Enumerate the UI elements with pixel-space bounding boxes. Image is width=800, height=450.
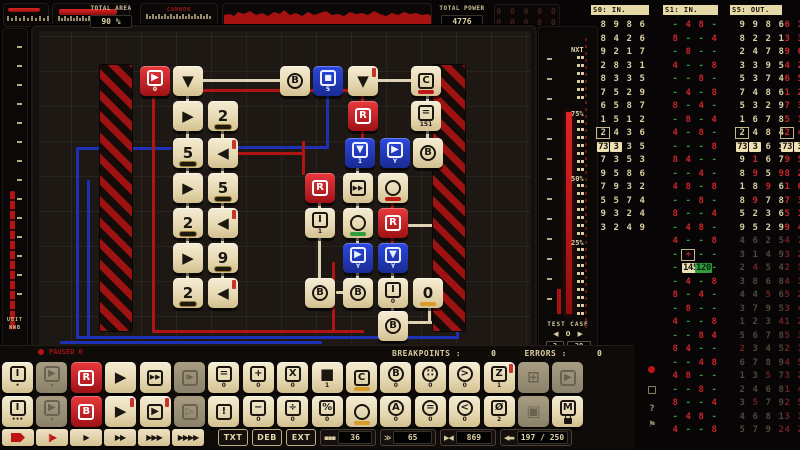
toolbar-tile-▶[interactable]: ▶: [105, 396, 136, 427]
stream-s5-cell: 2: [736, 344, 748, 354]
readout-value: 65: [393, 431, 432, 444]
wire-signal: [376, 79, 413, 82]
board-tile-◀[interactable]: ◀: [208, 208, 238, 238]
speed-button-4[interactable]: ▶▶▶▶: [172, 429, 204, 446]
dim-display-line: 0 0 0 0 0: [495, 6, 559, 17]
test-case-next-button[interactable]: ▶: [577, 330, 582, 338]
window-icon[interactable]: [648, 386, 656, 394]
toolbar-tile->[interactable]: >0: [449, 362, 480, 393]
toolbar-tile-▶▶[interactable]: ▶▶: [140, 362, 171, 393]
board-tile-◀[interactable]: ◀: [208, 138, 238, 168]
tile-glyph: ▼: [385, 247, 401, 263]
tile-glyph: ▶: [115, 404, 127, 419]
tile-glyph: >: [457, 366, 473, 382]
tile-glyph: 5: [218, 181, 228, 196]
tile-underbar: [180, 302, 196, 306]
stream-s1-cell: -: [708, 47, 720, 57]
stream-s1-cell: -: [695, 142, 707, 152]
stream-s5-cell: 2: [749, 317, 761, 327]
left-strip-tick: [17, 122, 22, 124]
stream-s5-cell: 6: [762, 142, 774, 152]
board-tile-▶[interactable]: ▶: [173, 173, 203, 203]
stream-s1-cell: 4: [669, 236, 681, 246]
tick-mark: [188, 14, 190, 19]
stream-s5-cell: 3: [736, 304, 748, 314]
speed-button-1[interactable]: ▶: [70, 429, 102, 446]
separator-dot: [585, 248, 587, 251]
toolbar-tile-R[interactable]: R: [71, 362, 102, 393]
toolbar-tile-▶[interactable]: ▶: [552, 362, 583, 393]
stream-s0-cell: 6: [636, 20, 648, 30]
stream-s1-cell: 8: [682, 304, 694, 314]
breakpoints-label: BREAKPOINTS :: [392, 349, 461, 358]
separator-dot: [585, 129, 587, 132]
meter-dot: [577, 72, 580, 75]
stream-s5-cell: 4: [749, 47, 761, 57]
toolbar-tile-▶[interactable]: ▶: [140, 396, 171, 427]
game-screen: TOTAL AREA 90 % CANNON TOTAL POWER 4776 …: [0, 0, 800, 450]
stream-edge-cell: 5: [794, 155, 800, 165]
stream-s1-cell: 4: [682, 412, 694, 422]
board-tile-node[interactable]: [378, 173, 408, 203]
stream-s0-cell: 9: [636, 88, 648, 98]
toolbar-tile-A[interactable]: A0: [380, 396, 411, 427]
stream-s1-cell: 8: [669, 398, 681, 408]
speed-button-3[interactable]: ▶▶▶: [138, 429, 170, 446]
tile-glyph: B: [312, 285, 328, 301]
tile-glyph: ◀: [217, 146, 229, 161]
stream-s1-cell: -: [708, 196, 720, 206]
stream-s0-cell: 2: [623, 34, 635, 44]
separator-dot: [585, 157, 587, 160]
stream-s0-cell: 9: [597, 169, 609, 179]
txt-button[interactable]: TXT: [218, 429, 248, 446]
meter-dot: [577, 184, 580, 187]
stream-s5-cell: 2: [749, 34, 761, 44]
stream-s0-cell: 6: [597, 101, 609, 111]
stream-s1-cell: 4: [695, 358, 707, 368]
stream-s1-cell: 4: [708, 34, 720, 44]
toolbar-tile-I[interactable]: I•••: [2, 396, 33, 427]
tile-sublabel: 0: [325, 417, 329, 423]
stream-s5-cell: 1: [749, 250, 761, 260]
tile-glyph: ∷: [422, 366, 438, 382]
tile-glyph: R: [312, 180, 328, 196]
board-tile-B[interactable]: B: [305, 278, 335, 308]
tick-mark: [203, 16, 205, 19]
stream-s5-cell: 2: [736, 47, 748, 57]
meter-dot: [577, 200, 580, 203]
stream-s1-cell: -: [695, 371, 707, 381]
meter-dot: [577, 64, 580, 67]
stream-s1-cell: -: [682, 101, 694, 111]
separator-dot: [585, 136, 587, 139]
stream-s1-cell: -: [669, 250, 681, 260]
stream-s5-cell: 9: [736, 155, 748, 165]
tile-glyph: ⊞: [527, 370, 540, 385]
stream-s0-cell: 8: [610, 61, 622, 71]
stream-edge-cell: 1: [781, 88, 793, 98]
stream-s5-cell: 3: [749, 101, 761, 111]
tile-glyph: ▶: [147, 404, 163, 420]
separator-dot: [585, 94, 587, 97]
toolbar-tile-B[interactable]: B: [71, 396, 102, 427]
board-tile-C[interactable]: C: [411, 66, 441, 96]
readout-1: ▪▪▪36: [320, 429, 376, 446]
ext-button[interactable]: EXT: [286, 429, 316, 446]
tile-glyph: ▶: [182, 181, 194, 196]
separator-dot: [585, 192, 587, 195]
meter-dot: [577, 248, 580, 251]
separator-dot: [585, 262, 587, 265]
meter-dot: [577, 160, 580, 163]
meter-dash: [547, 238, 552, 240]
errors-value: 0: [597, 349, 602, 358]
tick-mark: [39, 16, 41, 21]
stream-s1-cell: 8: [708, 358, 720, 368]
tile-underbar: [354, 387, 370, 391]
stream-s5-cell: 5: [762, 169, 774, 179]
meter-dash: [547, 298, 552, 300]
toolbar-tile-![interactable]: !: [208, 396, 239, 427]
stream-s0-cell: 7: [623, 196, 635, 206]
stream-s1-cell: 4: [695, 290, 707, 300]
toolbar-tile-▶[interactable]: ▶: [105, 362, 136, 393]
tile-sublabel: Y: [356, 264, 360, 270]
wire-red: [238, 152, 304, 155]
stream-s0-cell: 2: [623, 88, 635, 98]
toolbar-tile-=[interactable]: =0: [415, 396, 446, 427]
tile-sublabel: 0: [153, 87, 157, 93]
toolbar-tile-M[interactable]: M: [552, 396, 583, 427]
stream-s1-cell: 4: [695, 169, 707, 179]
board-tile-I[interactable]: I1: [305, 208, 335, 238]
stream-s1-cell: 8: [682, 182, 694, 192]
stream-edge-cell: 4: [781, 358, 793, 368]
tile-glyph: 2: [183, 286, 193, 301]
tile-underbar: [350, 232, 366, 236]
tile-glyph: [350, 215, 366, 231]
toolbar-tile-−[interactable]: −0: [243, 396, 274, 427]
board-tile-▶[interactable]: ▶: [173, 243, 203, 273]
board-tile-▶[interactable]: ▶0: [140, 66, 170, 96]
meter-dot: [577, 88, 580, 91]
separator-dot: [585, 311, 587, 314]
tile-glyph: ▶: [560, 370, 576, 386]
tick-mark: [79, 18, 81, 21]
stream-s1-cell: -: [695, 317, 707, 327]
stream-s1-cell: -: [695, 155, 707, 165]
board-tile-◀[interactable]: ◀: [208, 278, 238, 308]
total-area-value: 90 %: [90, 15, 132, 28]
tile-glyph: I: [10, 366, 26, 382]
tick-mark: [209, 16, 211, 19]
board-tile-B[interactable]: B: [413, 138, 443, 168]
stream-edge-cell: 4: [794, 385, 800, 395]
tile-glyph: R: [78, 370, 94, 386]
stream-edge-cell: 7: [794, 236, 800, 246]
tick-mark: [185, 16, 187, 19]
left-strip-tick: [17, 274, 22, 276]
stream-s1-cell: -: [669, 115, 681, 125]
stream-edge-cell: 1: [794, 277, 800, 287]
stream-s5-cell: 1: [736, 371, 748, 381]
tile-glyph: [385, 180, 401, 196]
stream-s1-cell: +: [682, 250, 694, 260]
board-tile-B[interactable]: B: [280, 66, 310, 96]
stream-s5-cell: 8: [762, 128, 774, 138]
stream-edge-cell: 2: [781, 263, 793, 273]
stream-edge-cell: 4: [781, 277, 793, 287]
tile-sublabel: 0: [394, 417, 398, 423]
stream-s5-cell: 4: [749, 88, 761, 98]
tile-glyph: X: [285, 366, 301, 382]
stream-s5-cell: 4: [736, 412, 748, 422]
stream-s5-cell: 2: [736, 385, 748, 395]
stream-s1-cell: -: [695, 115, 707, 125]
separator-dot: [585, 269, 587, 272]
stream-s0-cell: 1: [597, 115, 609, 125]
stream-s0-cell: 8: [623, 20, 635, 30]
step-button[interactable]: ‖▶: [36, 429, 68, 446]
errors-label: ERRORS :: [524, 349, 567, 358]
stream-edge-cell: 5: [781, 331, 793, 341]
toolbar-tile-node[interactable]: [346, 396, 377, 427]
separator-dot: [585, 38, 587, 41]
deb-button[interactable]: DEB: [252, 429, 282, 446]
tile-accent: [372, 68, 376, 77]
toolbar-tile-■[interactable]: ■1: [312, 362, 343, 393]
stream-s0-cell: 2: [610, 223, 622, 233]
toolbar-tile-C[interactable]: C: [346, 362, 377, 393]
stream-s1-cell: -: [708, 128, 720, 138]
stream-s0-header: S0: IN.: [591, 5, 649, 15]
separator-dot: [585, 220, 587, 223]
tile-glyph: B: [420, 145, 436, 161]
stream-s1-cell: 8: [708, 88, 720, 98]
stream-s1-cell: -: [682, 398, 694, 408]
tile-glyph: I: [10, 400, 26, 416]
stream-edge-cell: 6: [781, 74, 793, 84]
stream-s0-cell: 5: [636, 142, 648, 152]
tile-accent: [232, 210, 236, 219]
help-icon[interactable]: ?: [646, 404, 658, 414]
stream-s1-cell: 4: [682, 277, 694, 287]
stream-s5-cell: 7: [762, 331, 774, 341]
board-tile-0[interactable]: 0: [413, 278, 443, 308]
stream-s5-cell: 8: [749, 182, 761, 192]
tile-glyph: ▶: [350, 247, 366, 263]
board-tile-R[interactable]: R: [348, 101, 378, 131]
stream-s0-cell: 5: [610, 101, 622, 111]
tick-mark: [43, 18, 45, 21]
stream-s1-cell: -: [695, 304, 707, 314]
toolbar-tile-▶[interactable]: ▶▾: [36, 396, 67, 427]
board-tile-B[interactable]: B: [343, 278, 373, 308]
board-tile-5[interactable]: 5: [173, 138, 203, 168]
stream-s1-cell: -: [682, 358, 694, 368]
stream-edge-cell: 4: [781, 236, 793, 246]
board-tile-▶▶[interactable]: ▶▶: [343, 173, 373, 203]
stream-s5-cell: 5: [749, 398, 761, 408]
tick-mark: [15, 16, 17, 21]
stream-s0-cell: 7: [636, 101, 648, 111]
meter-dot: [577, 168, 580, 171]
board-tile-2[interactable]: 2: [208, 101, 238, 131]
stream-edge-cell: 3: [781, 412, 793, 422]
tile-sublabel: 0: [256, 417, 260, 423]
stream-s5-cell: 8: [736, 34, 748, 44]
stream-edge-cell: 3: [781, 371, 793, 381]
stream-s0-cell: 2: [636, 182, 648, 192]
toolbar-tile-I[interactable]: I•: [2, 362, 33, 393]
board-tile-5[interactable]: 5: [208, 173, 238, 203]
separator-dot: [585, 325, 587, 328]
toolbar-tile-Ø[interactable]: Ø2: [484, 396, 515, 427]
stream-s1-cell: -: [669, 223, 681, 233]
toolbar-tile-+[interactable]: +0: [243, 362, 274, 393]
stream-s1-cell: -: [682, 425, 694, 435]
tile-glyph: I: [312, 212, 328, 228]
board-tile-R[interactable]: R: [305, 173, 335, 203]
toolbar-tile-X[interactable]: X0: [277, 362, 308, 393]
tile-sublabel: 2: [497, 417, 501, 423]
toolbar-tile-%[interactable]: %0: [312, 396, 343, 427]
tile-glyph: 2: [218, 109, 228, 124]
toolbar-tile-⊞[interactable]: ⊞: [518, 362, 549, 393]
board-tile-▼[interactable]: ▼1: [345, 138, 375, 168]
separator-dot: [585, 185, 587, 188]
board-tile-B[interactable]: B: [378, 311, 408, 341]
board-tile-▼[interactable]: ▼: [173, 66, 203, 96]
board-tile-=[interactable]: =151: [411, 101, 441, 131]
stream-s5-cell: 5: [749, 223, 761, 233]
toolbar-tile-▶[interactable]: ▶▾: [36, 362, 67, 393]
tile-underbar: [180, 232, 196, 236]
board-tile-9[interactable]: 9: [208, 243, 238, 273]
stream-s5-cell: 4: [736, 236, 748, 246]
board-tile-▶[interactable]: ▶Y: [380, 138, 410, 168]
stream-s1-cell: 8: [695, 331, 707, 341]
board-tile-▼[interactable]: ▼Y: [378, 243, 408, 273]
secondary-meter-label: CANNON: [141, 7, 217, 13]
toolbar-tile-∷[interactable]: ∷0: [415, 362, 446, 393]
stream-edge-cell: 2: [794, 317, 800, 327]
board-tile-I[interactable]: I0: [378, 278, 408, 308]
stream-s5-cell: 9: [762, 304, 774, 314]
board-tile-2[interactable]: 2: [173, 208, 203, 238]
stream-s1-cell: -: [669, 304, 681, 314]
toolbar-tile-<[interactable]: <0: [449, 396, 480, 427]
readout-icon: ▪▪▪: [324, 434, 335, 442]
stream-s0-cell: 3: [623, 182, 635, 192]
board-tile-▼[interactable]: ▼: [348, 66, 378, 96]
tick-mark: [146, 14, 148, 19]
stream-s0-cell: 9: [597, 209, 609, 219]
stream-s0-cell: 4: [623, 223, 635, 233]
tick-mark: [152, 14, 154, 19]
tick-mark: [197, 16, 199, 19]
board-tile-▶[interactable]: ▶Y: [343, 243, 373, 273]
stream-s0-cell: 5: [636, 74, 648, 84]
stream-s1-cell: -: [708, 223, 720, 233]
halt-button[interactable]: [2, 429, 34, 446]
separator-dot: [585, 115, 587, 118]
tile-glyph: −: [250, 400, 266, 416]
tile-glyph: ▷: [182, 404, 198, 420]
stream-s0-cell: 4: [610, 128, 622, 138]
stream-s1-cell: -: [682, 290, 694, 300]
stream-s0-cell: 8: [597, 20, 609, 30]
stream-s1-cell: -: [669, 196, 681, 206]
tile-glyph: =: [418, 105, 434, 121]
run-state-dot: [38, 349, 44, 355]
breakpoints-value: 0: [491, 349, 496, 358]
board-tile-R[interactable]: R: [378, 208, 408, 238]
stream-s1-cell: -: [682, 331, 694, 341]
speed-button-2[interactable]: ▶▶: [104, 429, 136, 446]
toolbar-tile-▷[interactable]: ▷: [174, 396, 205, 427]
stream-s5-cell: 5: [736, 331, 748, 341]
tick-mark: [73, 18, 75, 21]
readout-icon: ◀▬: [504, 434, 514, 442]
stream-edge-cell: 3: [794, 331, 800, 341]
stream-edge-cell: 4: [794, 128, 800, 138]
stream-edge-cell: 3: [794, 196, 800, 206]
stream-edge-cell: 6: [781, 20, 793, 30]
meter-dot: [577, 256, 580, 259]
tick-mark: [170, 14, 172, 19]
tile-glyph: +: [250, 366, 266, 382]
stream-s5-cell: 7: [762, 398, 774, 408]
tile-underbar: [354, 421, 370, 425]
toolbar-tile-Z[interactable]: Z1: [484, 362, 515, 393]
tile-sublabel: •: [16, 383, 20, 389]
tick-mark: [173, 16, 175, 19]
stream-edge-cell: 2: [794, 290, 800, 300]
stream-edge-cell: 3: [794, 263, 800, 273]
tile-glyph: ▶: [44, 400, 60, 416]
tile-glyph: <: [457, 400, 473, 416]
tile-glyph: ◀: [217, 286, 229, 301]
stream-s0-cell: 3: [623, 142, 635, 152]
toolbar-tile-=[interactable]: =0: [208, 362, 239, 393]
flag-icon[interactable]: ⚑: [646, 420, 658, 430]
board-tile-2[interactable]: 2: [173, 278, 203, 308]
toolbar-tile-÷[interactable]: ÷0: [277, 396, 308, 427]
toolbar-tile-B[interactable]: B0: [380, 362, 411, 393]
stream-s0-cell: 2: [636, 115, 648, 125]
record-dot-icon[interactable]: [648, 366, 655, 373]
board-tile-▶[interactable]: ▶: [173, 101, 203, 131]
board-tile-■[interactable]: ■5: [313, 66, 343, 96]
stream-s5-cell: 6: [762, 385, 774, 395]
separator-dot: [585, 73, 587, 76]
stream-s5-cell: 9: [736, 223, 748, 233]
toolbar-tile-▣[interactable]: ▣: [518, 396, 549, 427]
stream-s5-cell: 6: [749, 115, 761, 125]
tick-mark: [161, 16, 163, 19]
test-case-prev-button[interactable]: ◀: [553, 330, 558, 338]
separator-dot: [585, 171, 587, 174]
meter-dash: [547, 118, 552, 120]
toolbar-tile-I▶[interactable]: I▶: [174, 362, 205, 393]
stream-edge-cell: 1: [794, 209, 800, 219]
board-tile-node[interactable]: [343, 208, 373, 238]
tile-underbar: [385, 197, 401, 201]
tile-sublabel: 0: [291, 383, 295, 389]
wire-signal: [408, 321, 430, 324]
